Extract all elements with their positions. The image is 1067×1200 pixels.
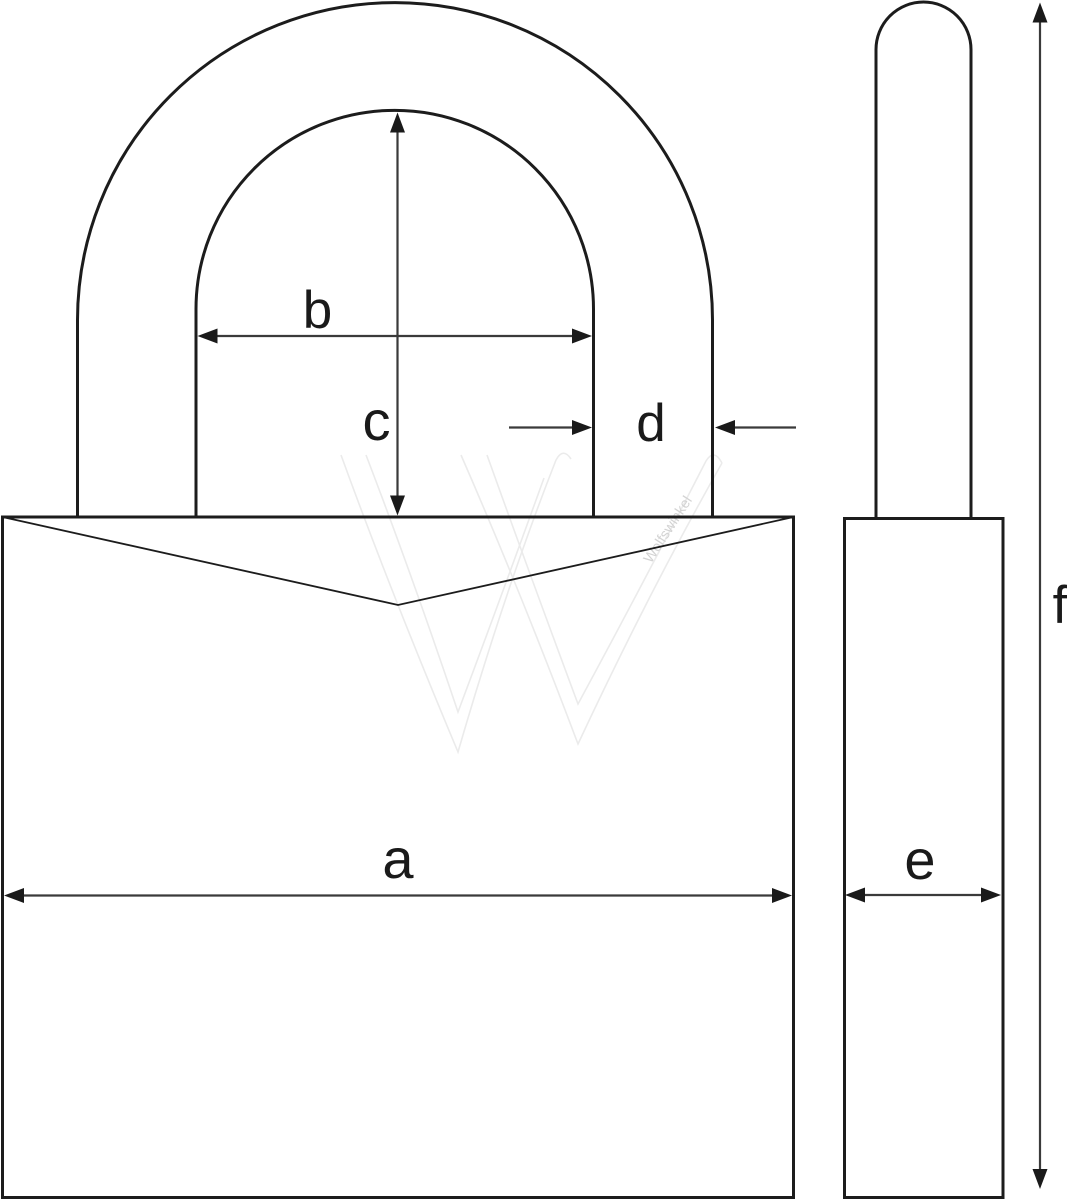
svg-text:d: d: [636, 394, 665, 453]
svg-text:f: f: [1053, 576, 1067, 635]
svg-text:e: e: [904, 828, 935, 891]
svg-text:a: a: [382, 827, 414, 890]
svg-text:b: b: [303, 281, 332, 340]
svg-text:c: c: [363, 389, 391, 452]
